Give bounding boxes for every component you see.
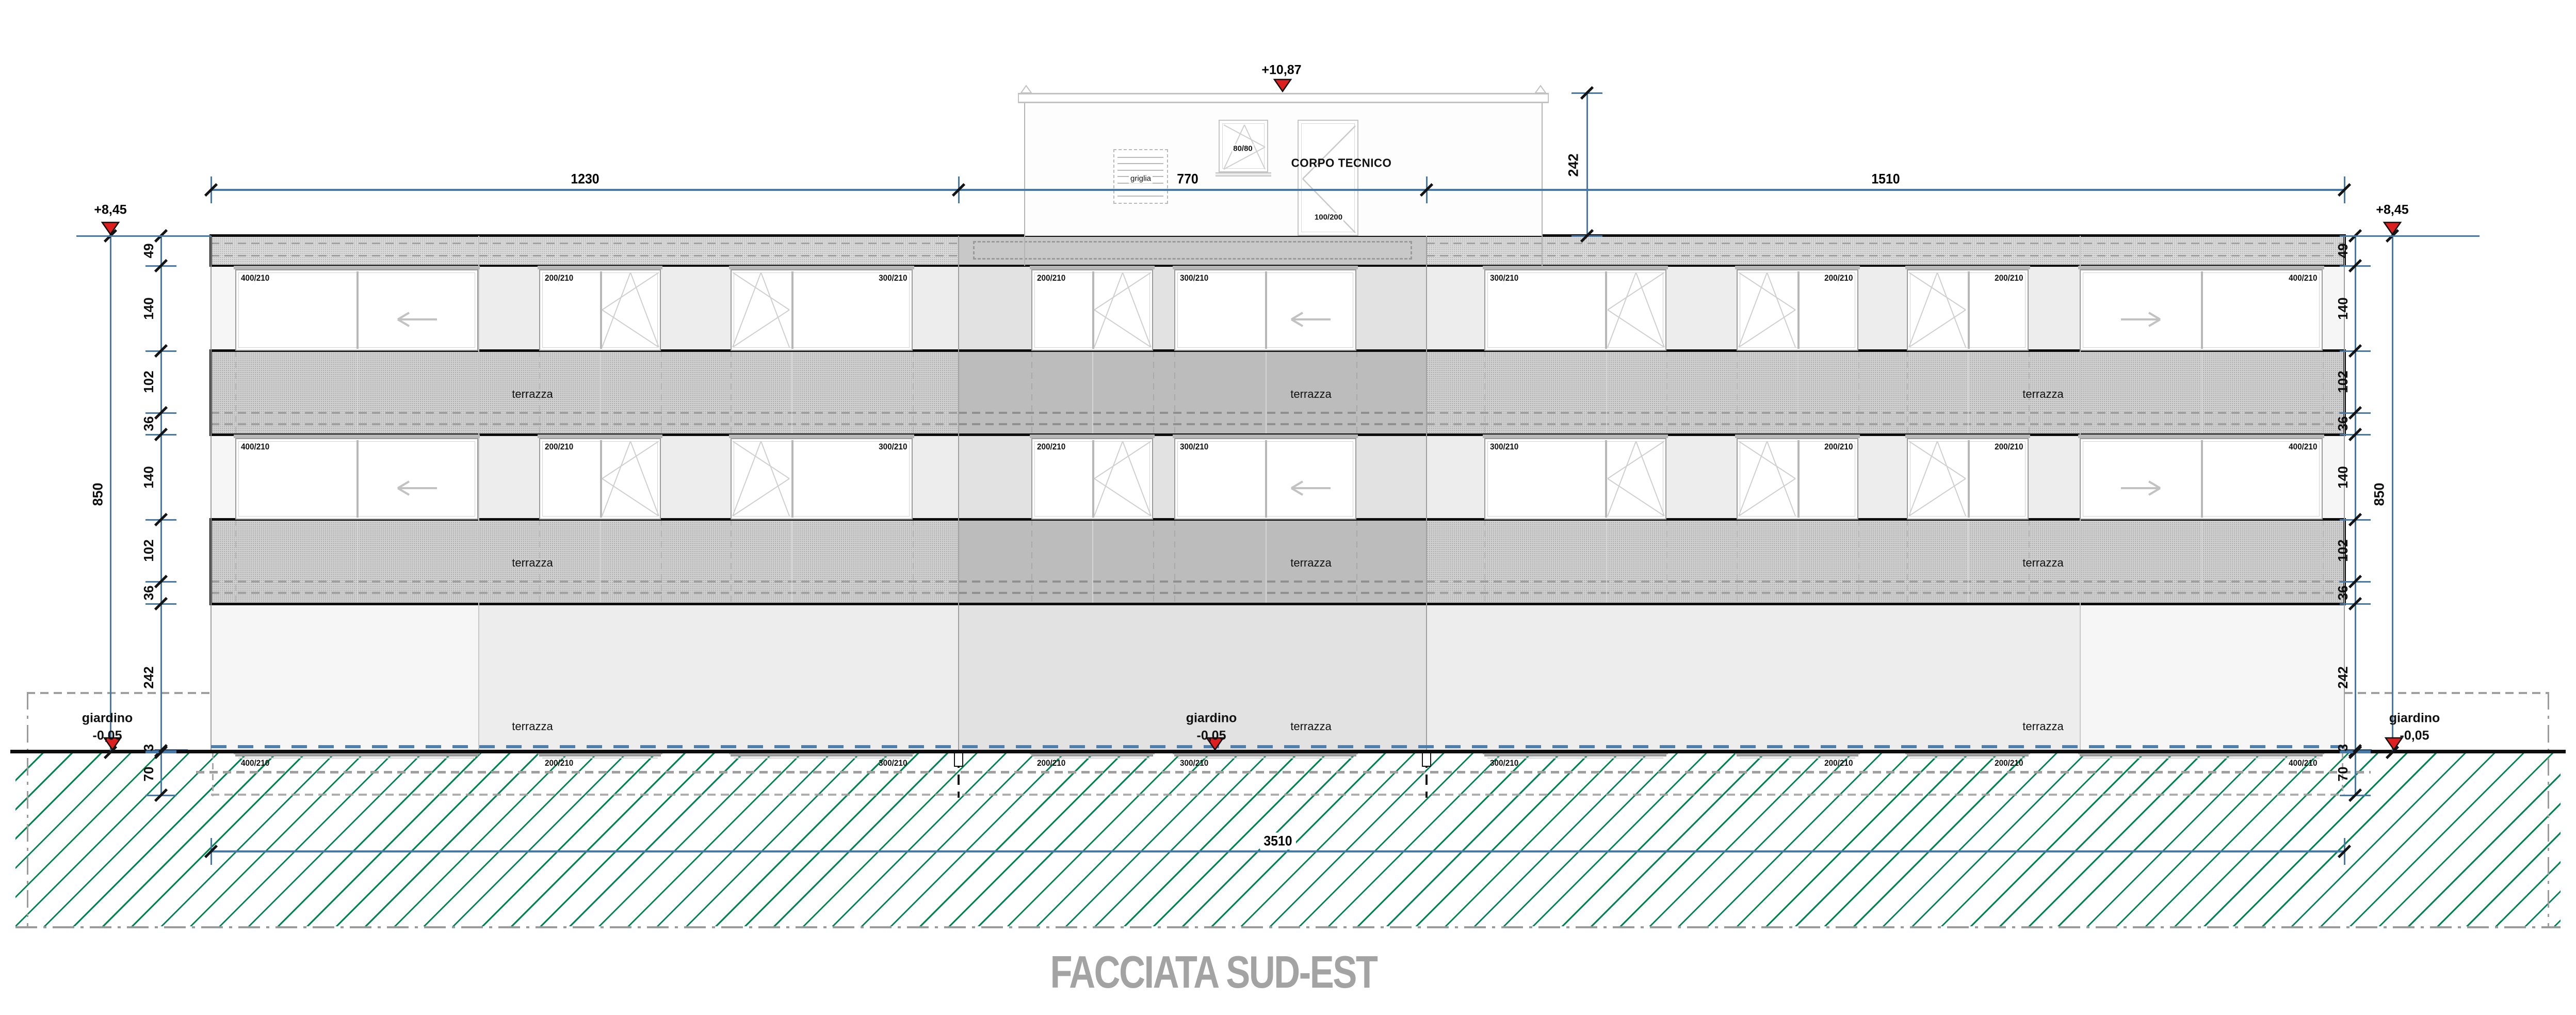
- terrace-hidden-window-edge: [1737, 520, 1738, 603]
- dim-chain-label-3: 3: [142, 744, 155, 751]
- drawing-title: FACCIATA SUD-EST: [1050, 949, 1377, 995]
- terrace2-bottom-line: [209, 603, 2346, 605]
- window-opening-symbol: [2080, 269, 2323, 351]
- dim-chain-label-140: 140: [2336, 466, 2350, 488]
- parapet-hidden-line-3: [1427, 243, 2344, 244]
- terrace-hidden-line: [211, 581, 959, 583]
- parapet-hidden-line-2: [211, 255, 959, 256]
- terrace-hidden-window-edge: [1031, 351, 1032, 434]
- terrace-hidden-window-edge: [2323, 351, 2324, 434]
- terrace-label: terrazza: [2022, 388, 2063, 401]
- corpo-roof-slab: [1018, 93, 1549, 103]
- terrace-hidden-window-edge: [1356, 351, 1357, 434]
- dim-line-overall-height: [110, 236, 111, 752]
- window-lintel: [2078, 266, 2324, 269]
- dim-chain-label-242: 242: [142, 666, 155, 688]
- dim-chain-label-36: 36: [2336, 585, 2350, 600]
- parapet-band-left: [211, 236, 959, 266]
- window-lintel: [1173, 266, 1358, 269]
- garden-wall-dashed-left: [27, 692, 211, 694]
- window-lintel: [1483, 434, 1668, 438]
- terrace-hidden-window-edge: [2323, 520, 2324, 603]
- garden-label-center: giardino: [1186, 711, 1237, 726]
- window-lintel: [1905, 434, 2030, 438]
- dim-chain-label-102: 102: [2336, 370, 2350, 393]
- window-200x210-f2: 200/210: [1905, 266, 2030, 351]
- terrace-hidden-window-edge: [1907, 351, 1908, 434]
- dim-chain-label-70: 70: [2336, 766, 2350, 781]
- terrace-hidden-window-edge: [1356, 520, 1357, 603]
- terrace-hidden-line: [1427, 412, 2344, 414]
- window-lintel: [1735, 266, 1860, 269]
- terrace-hidden-mullion: [1797, 351, 1799, 434]
- window-200x210-f2: 200/210: [538, 266, 662, 351]
- window-frame: [1174, 754, 1356, 756]
- block-divider-2: [1426, 236, 1427, 752]
- window-size-label: 200/210: [1995, 273, 2023, 283]
- garden-label-left: giardino: [82, 711, 133, 726]
- window-400x210-f2: 400/210: [234, 266, 480, 351]
- terrace-hidden-window-edge: [1031, 520, 1032, 603]
- corpo-top-level-marker: [1273, 78, 1292, 92]
- window-300x210-f2: 300/210: [1483, 266, 1668, 351]
- dim-line-total-width: [211, 850, 2344, 852]
- terrace-label: terrazza: [1290, 388, 1331, 401]
- terrace-label: terrazza: [1290, 720, 1331, 733]
- terrace-hidden-line: [1427, 592, 2344, 594]
- terrace-hidden-window-edge: [1858, 520, 1859, 603]
- dim-chain-label-36: 36: [2336, 416, 2350, 431]
- window-size-label: 400/210: [241, 442, 269, 452]
- window-size-label: 300/210: [1490, 758, 1518, 768]
- window-frame-inner: [238, 758, 475, 759]
- terrace-hidden-window-edge: [913, 520, 914, 603]
- dim-chain-label-49: 49: [142, 244, 155, 259]
- window-lintel: [2078, 434, 2324, 438]
- parapet-band-right: [1427, 236, 2344, 266]
- window-size-label: 400/210: [241, 758, 269, 768]
- terrace-hidden-line: [211, 412, 959, 414]
- window-200x210-f1: 200/210: [1030, 434, 1155, 520]
- terrace-band-left: [211, 520, 959, 603]
- dim-label-770: 770: [1177, 171, 1198, 187]
- window-size-label: 200/210: [1037, 442, 1065, 452]
- window-300x210-f1: 300/210: [729, 434, 914, 520]
- window-200x210-f2: 200/210: [1735, 266, 1860, 351]
- window-size-label: 200/210: [1037, 273, 1065, 283]
- terrace-hidden-window-edge: [235, 351, 236, 434]
- dim-chain-label-102: 102: [142, 370, 155, 393]
- window-size-label: 300/210: [879, 758, 907, 768]
- window-size-label: 200/210: [1995, 442, 2023, 452]
- window-size-label: 400/210: [2289, 273, 2317, 283]
- terrace-band-right: [1427, 520, 2344, 603]
- dim-label-1510: 1510: [1871, 171, 1900, 187]
- garden-wall-dashed-right: [2344, 692, 2549, 694]
- window-size-label: 300/210: [879, 442, 907, 452]
- terrace-hidden-window-edge: [1174, 520, 1175, 603]
- window-frame: [235, 754, 478, 756]
- window-200x210-f1: 200/210: [1905, 434, 2030, 520]
- window-300x210-f2: 300/210: [1173, 266, 1358, 351]
- dim-label-corpo-height: 242: [1567, 153, 1581, 176]
- terrace-hidden-window-edge: [731, 520, 732, 603]
- dim-chain-label-102: 102: [142, 539, 155, 561]
- roof-level-line-left: [76, 235, 211, 237]
- corpo-door-label: 100/200: [1314, 213, 1343, 222]
- terrace-band-left: [211, 351, 959, 434]
- terrace-hidden-mullion: [1092, 520, 1093, 603]
- window-lintel: [1030, 434, 1155, 438]
- window-lintel: [729, 266, 914, 269]
- corpo-window-sill: [1216, 172, 1271, 176]
- facade-edge-left: [210, 236, 212, 752]
- terrace-label: terrazza: [2022, 720, 2063, 733]
- grille-louver: [1117, 196, 1163, 197]
- window-lintel: [538, 266, 662, 269]
- dim-chain-label-3: 3: [2336, 744, 2350, 751]
- garden-boundary-right: [2548, 692, 2549, 926]
- terrace-hidden-mullion: [1606, 351, 1607, 434]
- garden-level-dashed-line: [211, 745, 2344, 748]
- terrace-hidden-mullion: [1092, 351, 1093, 434]
- dim-chain-label-102: 102: [2336, 539, 2350, 561]
- terrace-hidden-window-edge: [1737, 351, 1738, 434]
- terrace-label: terrazza: [1290, 556, 1331, 570]
- terrace-hidden-line: [211, 592, 959, 594]
- terrace-hidden-mullion: [2201, 520, 2202, 603]
- corpo-wall-parapet-line-left: [1024, 236, 1025, 266]
- window-200x210-f1: 200/210: [538, 434, 662, 520]
- terrace-hidden-mullion: [600, 520, 601, 603]
- parapet-hidden-rect-center: [973, 241, 1412, 260]
- window-lintel: [234, 434, 480, 438]
- excavation-limit-line: [15, 926, 2561, 928]
- terrace-hidden-mullion: [1968, 520, 1969, 603]
- terrace-hidden-window-edge: [1666, 520, 1667, 603]
- terrace-hidden-mullion: [357, 520, 358, 603]
- terrace-hidden-mullion: [1606, 520, 1607, 603]
- terrace-hidden-window-edge: [1907, 520, 1908, 603]
- terrace-hidden-mullion: [1266, 351, 1267, 434]
- terrace-hidden-window-edge: [1174, 351, 1175, 434]
- dim-label-overall-height: 850: [91, 482, 105, 506]
- terrace-hidden-window-edge: [661, 351, 662, 434]
- terrace-hidden-mullion: [357, 351, 358, 434]
- dim-chain-label-70: 70: [142, 766, 155, 781]
- dim-chain-label-140: 140: [142, 466, 155, 488]
- dim-line-corpo-height: [1586, 93, 1588, 236]
- terrace-hidden-mullion: [1266, 520, 1267, 603]
- terrace-label: terrazza: [512, 556, 553, 570]
- corpo-wall-parapet-line-right: [1542, 236, 1543, 266]
- terrace-hidden-window-edge: [1858, 351, 1859, 434]
- dim-label-total-width: 3510: [1260, 833, 1296, 850]
- roof-level-marker: [101, 221, 120, 235]
- ground-line: [10, 750, 2566, 753]
- garden-boundary-left: [27, 692, 28, 926]
- window-opening-symbol: [235, 269, 478, 351]
- corpo-window-label: 80/80: [1232, 144, 1254, 153]
- dim-line-overall-height: [2392, 236, 2393, 752]
- grille-louver: [1117, 170, 1163, 171]
- grille-label: griglia: [1129, 174, 1153, 184]
- terrace-hidden-window-edge: [1484, 351, 1485, 434]
- dim-chain-label-36: 36: [142, 585, 155, 600]
- terrace-hidden-window-edge: [235, 520, 236, 603]
- underground-dashed-line-1: [196, 771, 2371, 774]
- window-lintel: [1905, 266, 2030, 269]
- dim-chain-label-36: 36: [142, 416, 155, 431]
- dim-chain-label-140: 140: [2336, 297, 2350, 319]
- corpo-label: CORPO TECNICO: [1291, 156, 1392, 170]
- terrace-hidden-mullion: [1797, 520, 1799, 603]
- dim-chain-label-242: 242: [2336, 666, 2350, 688]
- terrace-hidden-mullion: [1968, 351, 1969, 434]
- window-lintel: [234, 266, 480, 269]
- terrace-hidden-line: [1427, 581, 2344, 583]
- terrace-hidden-mullion: [600, 351, 601, 434]
- window-size-label: 300/210: [1180, 758, 1208, 768]
- terrace-hidden-window-edge: [1484, 520, 1485, 603]
- window-size-label: 400/210: [2289, 758, 2317, 768]
- parapet-hidden-line-4: [1427, 255, 2344, 256]
- window-opening-symbol: [235, 438, 478, 520]
- dim-chain-line: [160, 236, 162, 795]
- terrace-hidden-mullion: [791, 520, 792, 603]
- dim-chain-line: [2355, 236, 2356, 795]
- terrace-hidden-line: [1427, 423, 2344, 425]
- window-frame: [2080, 754, 2323, 756]
- grille-louver: [1117, 157, 1163, 158]
- terrace-hidden-mullion: [791, 351, 792, 434]
- window-lintel: [1030, 266, 1155, 269]
- window-size-label: 200/210: [545, 273, 573, 283]
- corpo-top-level-label: +10,87: [1261, 63, 1301, 78]
- window-300x210-f2: 300/210: [729, 266, 914, 351]
- window-opening-symbol: [2080, 438, 2323, 520]
- terrace-hidden-window-edge: [731, 351, 732, 434]
- window-size-label: 300/210: [1180, 273, 1208, 283]
- window-400x210-f1: 400/210: [2078, 434, 2324, 520]
- corpo-grille: griglia: [1113, 149, 1168, 204]
- elevation-sheet: 400/210200/210300/210200/210300/210300/2…: [0, 0, 2576, 1015]
- window-lintel: [729, 434, 914, 438]
- terrace-label: terrazza: [512, 720, 553, 733]
- terrace-hidden-window-edge: [661, 520, 662, 603]
- roof-level-line-right: [2344, 235, 2480, 237]
- window-200x210-f2: 200/210: [1030, 266, 1155, 351]
- dim-label-overall-height: 850: [2373, 482, 2387, 506]
- dim-chain-label-49: 49: [2336, 244, 2350, 259]
- window-lintel: [1735, 434, 1860, 438]
- window-300x210-f1: 300/210: [1483, 434, 1668, 520]
- garden-level-center: -0,05: [1197, 729, 1226, 744]
- dim-chain-label-140: 140: [142, 297, 155, 319]
- roof-level-label: +8,45: [94, 203, 126, 218]
- garden-level-right: -0,05: [2400, 729, 2429, 744]
- terrace-hidden-window-edge: [1153, 520, 1154, 603]
- terrace-label: terrazza: [2022, 556, 2063, 570]
- window-size-label: 300/210: [1490, 442, 1518, 452]
- dim-line-horizontal: [211, 189, 2344, 191]
- window-400x210-f1: 400/210: [234, 434, 480, 520]
- window-400x210-f2: 400/210: [2078, 266, 2324, 351]
- dim-label-1230: 1230: [571, 171, 599, 187]
- parapet-hidden-line-1: [211, 243, 959, 244]
- window-200x210-f1: 200/210: [1735, 434, 1860, 520]
- terrace-hidden-window-edge: [1666, 351, 1667, 434]
- terrace-hidden-window-edge: [1153, 351, 1154, 434]
- window-lintel: [1483, 266, 1668, 269]
- window-size-label: 200/210: [1824, 442, 1853, 452]
- terrace-hidden-window-edge: [913, 351, 914, 434]
- window-size-label: 200/210: [545, 758, 573, 768]
- window-frame-inner: [2083, 758, 2320, 759]
- terrace-label: terrazza: [512, 388, 553, 401]
- window-size-label: 300/210: [1490, 273, 1518, 283]
- terrace-band-right: [1427, 351, 2344, 434]
- underground-dashed-line-2: [211, 794, 2344, 796]
- window-size-label: 200/210: [545, 442, 573, 452]
- window-lintel: [1173, 434, 1358, 438]
- terrace-hidden-line: [211, 423, 959, 425]
- corpo-walls: [1024, 103, 1543, 236]
- window-size-label: 400/210: [2289, 442, 2317, 452]
- window-size-label: 200/210: [1824, 273, 1853, 283]
- roof-level-marker: [2383, 221, 2402, 235]
- window-size-label: 300/210: [879, 273, 907, 283]
- foundation-dashed-left: [212, 752, 214, 796]
- block-divider-1: [958, 236, 959, 752]
- grille-louver: [1117, 163, 1163, 164]
- window-300x210-f1: 300/210: [1173, 434, 1358, 520]
- window-size-label: 300/210: [1180, 442, 1208, 452]
- window-lintel: [538, 434, 662, 438]
- window-size-label: 200/210: [1824, 758, 1853, 768]
- garden-level-left: -0,05: [93, 729, 122, 744]
- window-size-label: 400/210: [241, 273, 269, 283]
- window-size-label: 200/210: [1995, 758, 2023, 768]
- terrace-hidden-mullion: [2201, 351, 2202, 434]
- window-size-label: 200/210: [1037, 758, 1065, 768]
- garden-label-right: giardino: [2389, 711, 2440, 726]
- roof-level-label: +8,45: [2376, 203, 2408, 218]
